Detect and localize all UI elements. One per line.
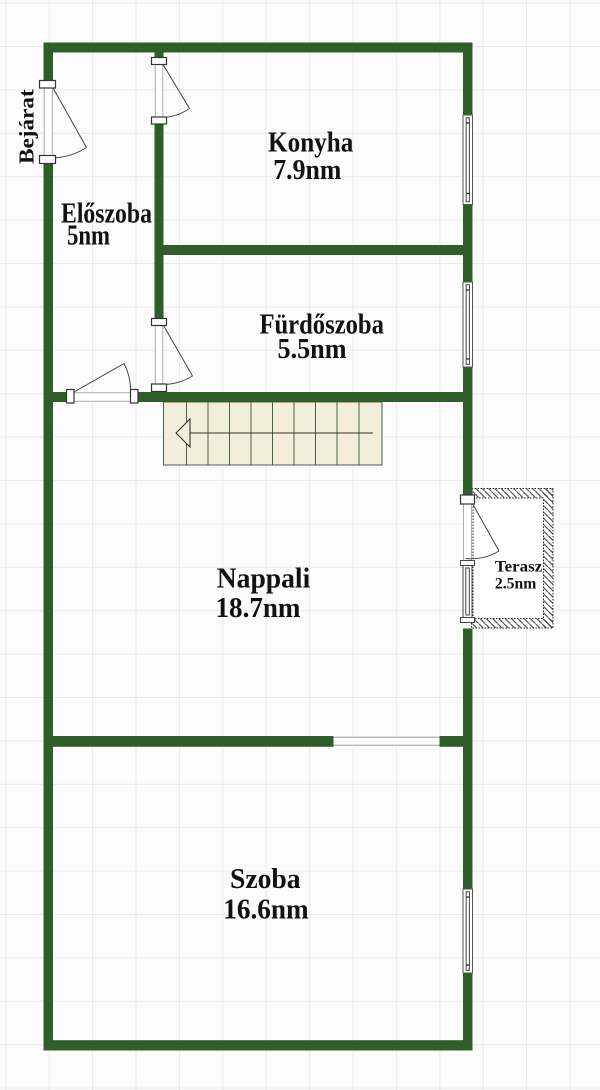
- svg-text:18.7nm: 18.7nm: [216, 593, 301, 624]
- svg-text:5nm: 5nm: [67, 220, 110, 251]
- svg-text:5.5nm: 5.5nm: [278, 334, 347, 365]
- svg-text:Konyha: Konyha: [268, 128, 353, 159]
- svg-text:7.9nm: 7.9nm: [273, 155, 341, 186]
- svg-text:Szoba: Szoba: [230, 864, 301, 895]
- svg-text:Nappali: Nappali: [217, 564, 311, 595]
- svg-text:2.5nm: 2.5nm: [495, 576, 537, 593]
- svg-text:16.6nm: 16.6nm: [223, 895, 308, 926]
- svg-text:Terasz: Terasz: [495, 559, 542, 576]
- svg-text:Bejárat: Bejárat: [15, 89, 39, 164]
